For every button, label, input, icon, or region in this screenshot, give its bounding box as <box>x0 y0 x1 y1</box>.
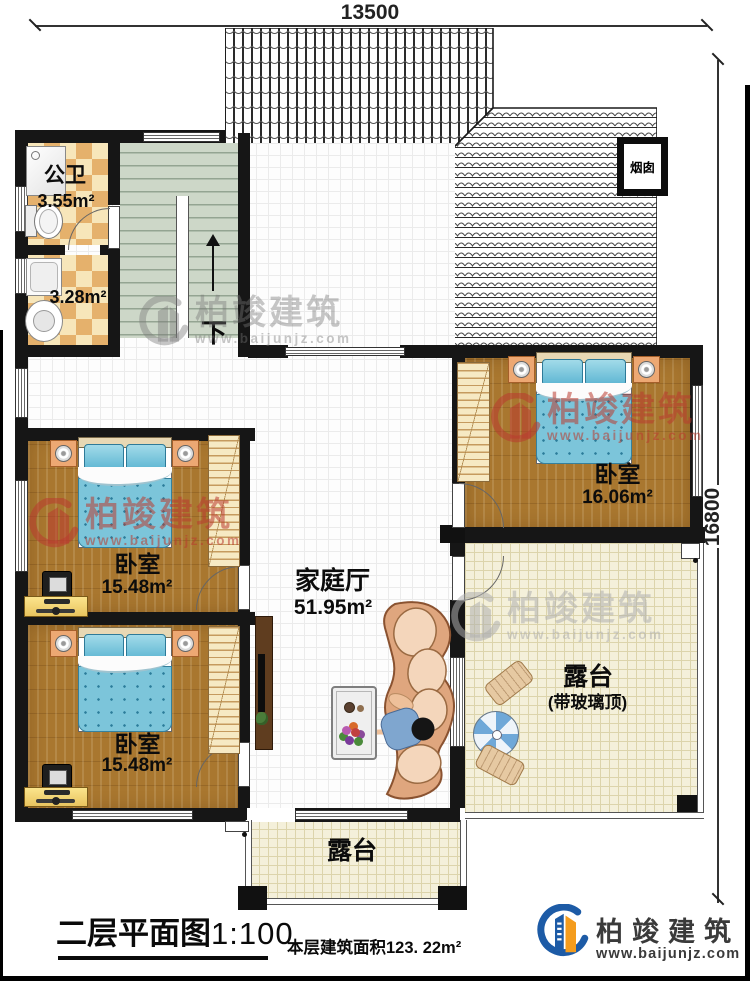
wardrobe-bedroom2 <box>208 626 240 754</box>
sheet-title: 二层平面图1:100 <box>56 908 294 953</box>
wall-hall-top-b <box>400 345 455 358</box>
door-hinge-dot <box>242 832 247 837</box>
bedroom3-name: 卧室 <box>575 462 660 486</box>
window-bedroom1-left <box>15 480 28 572</box>
wall-bath-divider-a <box>15 245 65 255</box>
bathroom-name: 公卫 <box>30 165 100 187</box>
bedroom2-name: 卧室 <box>95 732 180 756</box>
floor-area-note: 本层建筑面积123. 22m² <box>287 934 461 958</box>
bed-pillow <box>542 359 583 386</box>
chimney-box: 烟囱 <box>617 137 668 196</box>
dimension-line-right-a <box>717 60 719 485</box>
nightstand <box>172 630 199 657</box>
flower-bouquet <box>342 726 351 735</box>
terrace2-bottom-rail <box>245 898 467 905</box>
family-hall-area: 51.95m² <box>288 597 378 619</box>
table-item <box>357 705 364 712</box>
nightstand <box>50 630 77 657</box>
bed-pillow <box>585 359 626 386</box>
stairs-arrow-line <box>212 243 214 291</box>
bed-blanket <box>536 394 632 464</box>
dimension-line-right-b <box>717 548 719 903</box>
nightstand <box>633 356 660 383</box>
terrace-corner-marker <box>681 543 700 559</box>
brand-website: www.baijunjz.com <box>596 946 740 962</box>
wardrobe-bedroom3 <box>457 362 490 482</box>
wall-bath-stairs-a <box>108 143 120 205</box>
title-underline <box>58 956 268 960</box>
dresser-bedroom1 <box>24 596 88 617</box>
table-item <box>344 702 355 713</box>
wall-bath-bottom <box>15 345 120 357</box>
bedroom1-area: 15.48m² <box>92 578 182 598</box>
terrace-glass-note: (带玻璃顶) <box>535 694 640 712</box>
bedroom2-area: 15.48m² <box>92 756 182 776</box>
chimney-label: 烟囱 <box>624 144 661 189</box>
stairs-handrail <box>176 196 189 338</box>
person-head <box>412 718 435 741</box>
bed-bedroom3 <box>536 352 632 464</box>
dimension-top-label: 13500 <box>320 1 420 25</box>
sheet-scale: 1:100 <box>211 916 294 951</box>
bed-bedroom2 <box>78 627 172 732</box>
door-gap-bottom <box>247 808 295 822</box>
terrace-bottom-name: 露台 <box>312 838 392 864</box>
dresser-bedroom2 <box>24 787 88 807</box>
sheet-frame-left <box>0 330 3 981</box>
dimension-right-label: 16800 <box>701 481 725 553</box>
family-hall-name: 家庭厅 <box>285 568 380 594</box>
coffee-table <box>331 686 377 760</box>
window-hall-bottom <box>295 810 408 820</box>
nightstand <box>508 356 535 383</box>
nightstand <box>50 440 77 467</box>
wall-stairs-right <box>238 133 250 357</box>
terrace2-post-left <box>238 886 267 910</box>
wall-hall-top-a <box>248 345 288 358</box>
bedroom3-area: 16.06m² <box>570 488 665 508</box>
terrace-glass-name: 露台 <box>548 664 628 690</box>
tv-screen <box>258 654 265 712</box>
wall-hall-terrace-a <box>450 543 465 556</box>
stairs-down-label: 下 <box>198 320 230 347</box>
bed-blanket <box>78 666 172 732</box>
bed-blanket <box>78 478 172 548</box>
terrace-glass-right-rail <box>697 543 704 818</box>
window-hall-top <box>285 347 405 356</box>
wardrobe-bedroom1 <box>208 435 240 567</box>
terrace-hinge-dot <box>693 558 698 563</box>
window-bedroom2-bottom <box>72 810 193 820</box>
brand-logo-icon <box>534 904 590 962</box>
desk-bedroom1 <box>42 571 72 599</box>
bedroom1-name: 卧室 <box>95 552 180 576</box>
brand-name: 柏竣建筑 <box>596 910 740 949</box>
nightstand <box>172 440 199 467</box>
bathroom-area: 3.55m² <box>26 192 106 211</box>
sheet-frame-right <box>745 85 750 981</box>
sheet-frame-bottom <box>0 976 750 981</box>
door-leaf-terrace2 <box>225 821 249 832</box>
stairs-arrow-head <box>206 234 220 246</box>
terrace2-post-right <box>438 886 467 910</box>
washroom-area: 3.28m² <box>38 288 118 307</box>
bed-bedroom1 <box>78 437 172 548</box>
terrace-glass-bottom-rail <box>465 812 704 819</box>
floor-plan-sheet: 烟囱 <box>0 0 750 981</box>
window-hall-left <box>15 368 28 418</box>
dimension-line-top <box>35 25 707 27</box>
plant-icon <box>256 712 268 725</box>
sheet-title-text: 二层平面图 <box>56 916 211 951</box>
wall-bedroom2-right-b <box>238 787 250 808</box>
wall-bedroom3-bottom <box>443 527 705 543</box>
window-stairs-top <box>143 132 220 142</box>
